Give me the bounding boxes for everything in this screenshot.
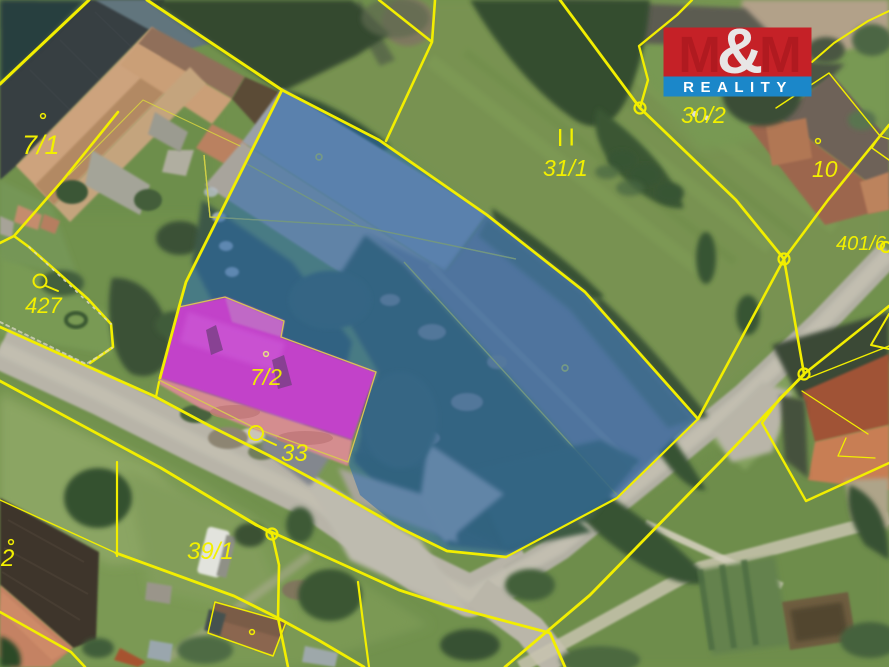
- svg-text:REALITY: REALITY: [683, 79, 793, 96]
- svg-text:30/2: 30/2: [681, 102, 726, 128]
- svg-text:7/1: 7/1: [22, 130, 60, 160]
- svg-text:31/1: 31/1: [543, 155, 588, 181]
- svg-text:7/2: 7/2: [250, 364, 282, 390]
- svg-text:10: 10: [812, 156, 838, 182]
- svg-text:M&M: M&M: [678, 15, 799, 87]
- svg-text:401/6: 401/6: [836, 233, 887, 255]
- svg-text:39/1: 39/1: [187, 538, 234, 565]
- svg-text:427: 427: [25, 293, 62, 318]
- svg-text:33: 33: [281, 440, 308, 467]
- svg-text:2: 2: [0, 545, 14, 572]
